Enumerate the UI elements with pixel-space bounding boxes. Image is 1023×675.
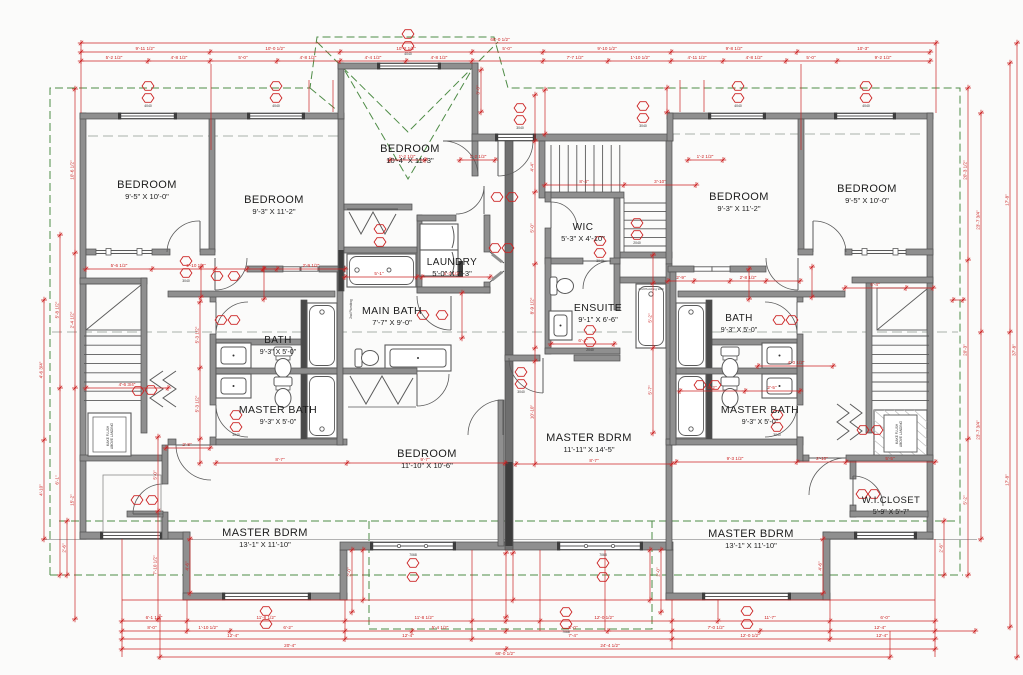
svg-text:12'-0 1/2": 12'-0 1/2" — [594, 615, 614, 620]
svg-text:3040: 3040 — [182, 279, 190, 283]
svg-text:5'-3" X 4'-10": 5'-3" X 4'-10" — [561, 234, 605, 243]
svg-text:5'-3 1/2": 5'-3 1/2" — [195, 326, 200, 343]
svg-text:11'-7": 11'-7" — [764, 615, 776, 620]
svg-text:4'-0 1/2": 4'-0 1/2" — [788, 360, 805, 365]
svg-text:17'-8": 17'-8" — [1005, 194, 1010, 206]
svg-text:4'-8 1/2": 4'-8 1/2" — [300, 55, 317, 60]
svg-text:WIC: WIC — [573, 222, 594, 233]
svg-text:5'-2": 5'-2" — [963, 495, 968, 505]
svg-text:2'-9 1/2": 2'-9 1/2" — [303, 263, 320, 268]
svg-text:MASTER BDRM: MASTER BDRM — [708, 528, 794, 540]
svg-text:5'-5": 5'-5" — [885, 456, 895, 461]
svg-text:BEDROOM: BEDROOM — [397, 448, 457, 460]
svg-text:BEDROOM: BEDROOM — [837, 183, 897, 195]
svg-text:4040: 4040 — [734, 104, 742, 108]
svg-text:8'-0": 8'-0" — [147, 625, 157, 630]
svg-text:8'-7": 8'-7" — [589, 458, 599, 463]
svg-text:10'-6 1/2": 10'-6 1/2" — [70, 160, 75, 180]
svg-text:4'-10": 4'-10" — [39, 484, 44, 496]
svg-text:2'-4 1/2": 2'-4 1/2" — [70, 311, 75, 328]
svg-text:2040: 2040 — [633, 241, 641, 245]
svg-text:4'-6 3/4": 4'-6 3/4" — [119, 382, 136, 387]
svg-text:9'-3" X 5'-0": 9'-3" X 5'-0" — [260, 419, 297, 426]
svg-text:9'-3" X 5'-0": 9'-3" X 5'-0" — [260, 349, 297, 356]
svg-text:2040: 2040 — [586, 348, 594, 352]
svg-text:24'-4 1/2": 24'-4 1/2" — [600, 643, 620, 648]
svg-text:10'-0 1/2": 10'-0 1/2" — [265, 46, 285, 51]
svg-text:4'-6": 4'-6" — [818, 561, 823, 571]
svg-text:2'-8": 2'-8" — [182, 442, 192, 447]
svg-text:7'-7" X 9'-0": 7'-7" X 9'-0" — [372, 318, 412, 327]
svg-text:20'-4": 20'-4" — [284, 643, 296, 648]
svg-text:BATH: BATH — [725, 313, 753, 324]
svg-text:23'-7 3/4": 23'-7 3/4" — [976, 210, 981, 230]
svg-text:17'-8": 17'-8" — [1005, 474, 1010, 486]
svg-text:5'-2 1/2": 5'-2 1/2" — [106, 55, 123, 60]
svg-text:9'-3" X 11'-2": 9'-3" X 11'-2" — [252, 207, 295, 216]
svg-text:6'-1": 6'-1" — [55, 475, 60, 485]
svg-text:MAIN BATH: MAIN BATH — [362, 305, 422, 317]
svg-text:5'-0": 5'-0" — [530, 223, 535, 233]
svg-text:12'-4": 12'-4" — [227, 633, 239, 638]
svg-text:2'-0": 2'-0" — [347, 567, 352, 577]
svg-text:9'-11 1/2": 9'-11 1/2" — [135, 46, 154, 51]
svg-text:10'-4" X 11'-3": 10'-4" X 11'-3" — [386, 156, 434, 165]
svg-text:5'-1": 5'-1" — [374, 271, 384, 276]
svg-text:2nd Plumbing Wall: 2nd Plumbing Wall — [639, 287, 664, 291]
svg-text:13'-1" X 11'-10": 13'-1" X 11'-10" — [239, 540, 291, 549]
svg-text:5'-0" X 7'-3": 5'-0" X 7'-3" — [432, 269, 472, 278]
svg-text:9'-2 1/2": 9'-2 1/2" — [875, 55, 892, 60]
svg-text:BEDROOM: BEDROOM — [709, 191, 769, 203]
svg-text:LAUNDRY: LAUNDRY — [427, 257, 477, 268]
svg-text:12'-0 1/2": 12'-0 1/2" — [740, 633, 760, 638]
svg-text:3'-10": 3'-10" — [654, 179, 666, 184]
svg-text:6'-0": 6'-0" — [880, 615, 890, 620]
svg-text:2'-9": 2'-9" — [676, 275, 686, 280]
svg-text:2'-10": 2'-10" — [816, 456, 828, 461]
svg-text:5'-3 1/2": 5'-3 1/2" — [195, 395, 200, 412]
svg-text:5'-8 1/2": 5'-8 1/2" — [55, 301, 60, 318]
svg-text:11'-8 1/2": 11'-8 1/2" — [414, 615, 433, 620]
svg-text:2nd Plumbing: 2nd Plumbing — [349, 299, 353, 319]
svg-text:4'-8 1/2": 4'-8 1/2" — [431, 55, 448, 60]
svg-text:1'-10 1/2": 1'-10 1/2" — [630, 55, 650, 60]
svg-text:5'-0": 5'-0" — [238, 55, 248, 60]
svg-text:8'-7": 8'-7" — [275, 457, 285, 462]
svg-text:9'-3" X 5'-0": 9'-3" X 5'-0" — [721, 327, 758, 334]
svg-text:4040: 4040 — [862, 104, 870, 108]
svg-text:66'-0 1/2": 66'-0 1/2" — [495, 651, 515, 656]
svg-text:1'-10 1/2": 1'-10 1/2" — [198, 625, 218, 630]
svg-text:11'-10" X 10'-6": 11'-10" X 10'-6" — [401, 461, 453, 470]
svg-text:MASTER BDRM: MASTER BDRM — [222, 527, 308, 539]
svg-text:6'-4": 6'-4" — [870, 282, 880, 287]
svg-text:7'-10 1/2": 7'-10 1/2" — [153, 555, 158, 575]
svg-text:7'-4": 7'-4" — [568, 633, 578, 638]
svg-text:MASTER BATH: MASTER BATH — [721, 404, 799, 416]
svg-text:6'-2": 6'-2" — [283, 625, 293, 630]
svg-text:12'-4": 12'-4" — [874, 625, 886, 630]
svg-text:9'-5" X 10'-0": 9'-5" X 10'-0" — [845, 196, 889, 205]
svg-text:5'-0": 5'-0" — [153, 470, 158, 480]
svg-text:7068: 7068 — [562, 630, 570, 634]
svg-text:4'-8 1/2": 4'-8 1/2" — [746, 55, 763, 60]
svg-text:ABOVE LANDING: ABOVE LANDING — [899, 420, 903, 447]
svg-text:2'-0": 2'-0" — [656, 567, 661, 577]
svg-text:23'-7 3/4": 23'-7 3/4" — [976, 420, 981, 440]
svg-text:BEDROOM: BEDROOM — [244, 194, 304, 206]
svg-text:68'-0 1/2": 68'-0 1/2" — [490, 37, 510, 42]
svg-text:20'-3": 20'-3" — [963, 344, 968, 356]
svg-text:1'-2 1/2": 1'-2 1/2" — [470, 154, 487, 159]
svg-text:3'-0": 3'-0" — [476, 85, 481, 95]
svg-text:5'-0": 5'-0" — [502, 46, 512, 51]
svg-text:9'-10 1/2": 9'-10 1/2" — [597, 46, 617, 51]
svg-text:4'-4": 4'-4" — [530, 162, 535, 172]
svg-text:9'-8 1/2": 9'-8 1/2" — [726, 46, 743, 51]
svg-text:W.I.CLOSET: W.I.CLOSET — [862, 495, 920, 506]
svg-text:4'-11 1/2": 4'-11 1/2" — [687, 55, 706, 60]
svg-text:BATH: BATH — [264, 335, 292, 346]
svg-text:5'-2": 5'-2" — [648, 313, 653, 323]
svg-text:2'-6": 2'-6" — [939, 543, 944, 553]
svg-text:20'-3 1/2": 20'-3 1/2" — [963, 160, 968, 180]
svg-text:MASTER BDRM: MASTER BDRM — [546, 432, 632, 444]
svg-text:4'-8 1/2": 4'-8 1/2" — [171, 55, 188, 60]
svg-text:2'-5": 2'-5" — [767, 385, 777, 390]
svg-text:10'-10": 10'-10" — [530, 405, 535, 420]
svg-text:37'-8": 37'-8" — [1012, 344, 1017, 356]
svg-text:BEDROOM: BEDROOM — [380, 143, 440, 155]
svg-text:9'-5" X 10'-0": 9'-5" X 10'-0" — [125, 192, 169, 201]
svg-text:BEDROOM: BEDROOM — [117, 179, 177, 191]
svg-text:8'-9 1/2": 8'-9 1/2" — [530, 297, 535, 314]
svg-text:ENSUITE: ENSUITE — [574, 302, 622, 314]
svg-text:7068: 7068 — [599, 553, 607, 557]
svg-text:10'-3": 10'-3" — [857, 46, 869, 51]
svg-text:MASTER BATH: MASTER BATH — [239, 404, 317, 416]
svg-text:11'-11" X 14'-5": 11'-11" X 14'-5" — [563, 445, 614, 454]
svg-text:5'-0": 5'-0" — [806, 55, 816, 60]
svg-text:1'-2 1/2": 1'-2 1/2" — [697, 154, 714, 159]
svg-text:15'-2": 15'-2" — [70, 494, 75, 506]
svg-text:3040: 3040 — [517, 390, 525, 394]
svg-text:9'-1" X 6'-6": 9'-1" X 6'-6" — [578, 315, 618, 324]
svg-text:12'-4": 12'-4" — [402, 633, 414, 638]
svg-text:4040: 4040 — [404, 52, 412, 56]
svg-text:12'-4": 12'-4" — [876, 633, 888, 638]
svg-text:3040: 3040 — [639, 124, 647, 128]
svg-text:4'-6": 4'-6" — [185, 561, 190, 571]
svg-text:9'-3" X 11'-2": 9'-3" X 11'-2" — [717, 204, 760, 213]
svg-text:5'-4 1/2": 5'-4 1/2" — [432, 625, 449, 630]
svg-text:3040: 3040 — [516, 126, 524, 130]
svg-text:7'-0 1/2": 7'-0 1/2" — [708, 625, 725, 630]
svg-text:2'-8 1/2": 2'-8 1/2" — [740, 275, 757, 280]
svg-text:2'-6": 2'-6" — [62, 543, 67, 553]
svg-text:7068: 7068 — [409, 553, 417, 557]
svg-text:9'-3" X 5'-0": 9'-3" X 5'-0" — [742, 419, 779, 426]
svg-text:7'-7 1/2": 7'-7 1/2" — [567, 55, 584, 60]
svg-text:4'-4 1/2": 4'-4 1/2" — [365, 55, 382, 60]
svg-text:3040: 3040 — [596, 259, 604, 263]
svg-text:13'-1" X 11'-10": 13'-1" X 11'-10" — [725, 541, 777, 550]
svg-text:3040: 3040 — [773, 433, 781, 437]
svg-text:3040: 3040 — [232, 433, 240, 437]
svg-text:8'-4": 8'-4" — [579, 179, 589, 184]
svg-text:ABOVE LANDING: ABOVE LANDING — [110, 422, 114, 449]
svg-text:5'-9" X 5'-7": 5'-9" X 5'-7" — [873, 509, 910, 516]
svg-text:4'-6 3/4": 4'-6 3/4" — [39, 361, 44, 378]
svg-text:4040: 4040 — [144, 104, 152, 108]
svg-text:9'-3 1/2": 9'-3 1/2" — [727, 456, 744, 461]
svg-text:5'-6 1/2": 5'-6 1/2" — [111, 263, 128, 268]
svg-text:4040: 4040 — [272, 104, 280, 108]
svg-text:5'-7": 5'-7" — [648, 385, 653, 395]
